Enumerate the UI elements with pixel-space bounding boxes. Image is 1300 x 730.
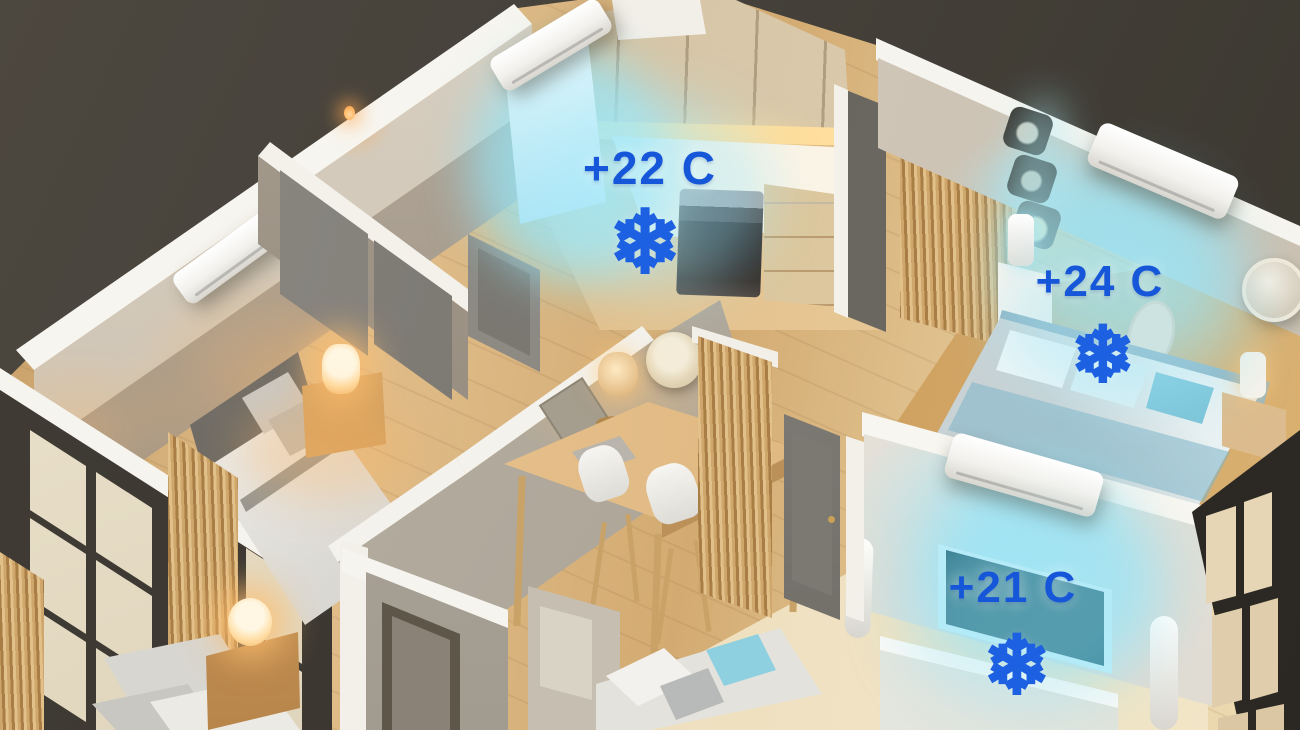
- temperature-label-living-room: +21 C: [898, 566, 1128, 610]
- snowflake-icon: ❄: [932, 626, 1102, 706]
- wall-sconce-flame: [344, 106, 355, 120]
- temperature-label-bedroom-right: +24 C: [985, 260, 1215, 304]
- snowflake-icon: ❄: [560, 200, 730, 286]
- warm-floor-glow: [240, 400, 410, 500]
- door-knob: [828, 516, 835, 523]
- desk-lamp: [598, 352, 638, 396]
- snowflake-icon: ❄: [1018, 318, 1188, 394]
- table-lamp: [228, 598, 272, 646]
- table-lamp: [322, 344, 360, 394]
- temperature-label-kitchen: +22 C: [535, 145, 765, 191]
- humidifier: [1008, 214, 1034, 266]
- apartment-3d-scene: +22 C ❄ +24 C ❄ +21 C ❄: [0, 0, 1300, 730]
